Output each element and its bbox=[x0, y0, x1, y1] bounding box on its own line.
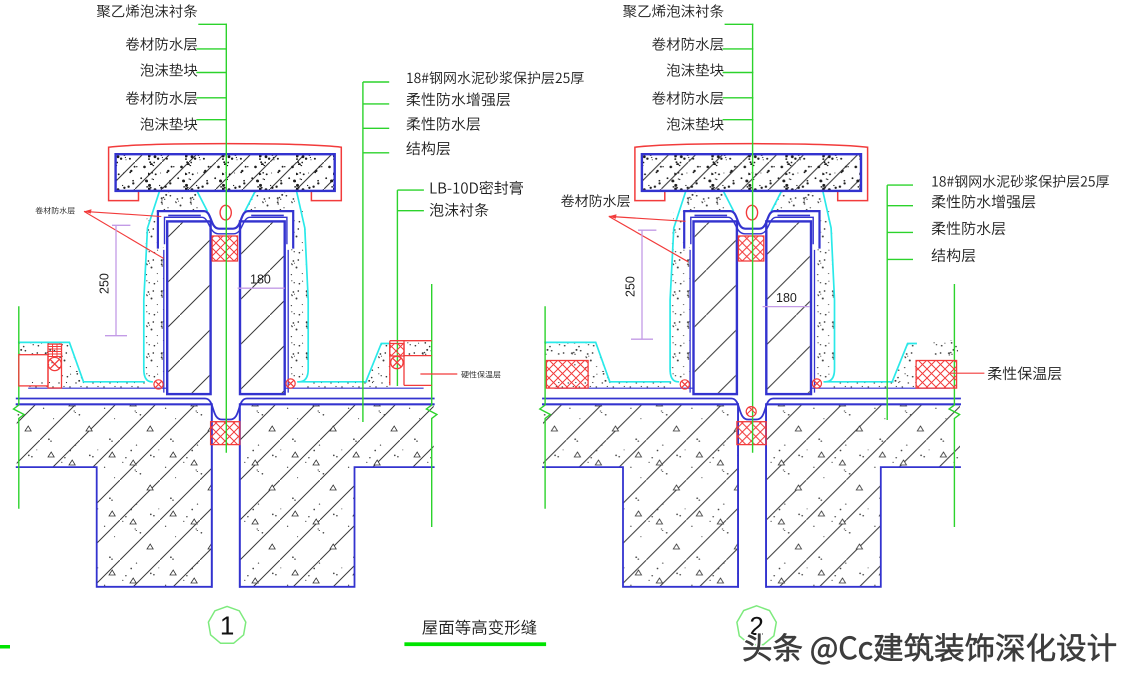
svg-text:250: 250 bbox=[98, 273, 112, 294]
svg-text:180: 180 bbox=[776, 291, 797, 305]
svg-text:250: 250 bbox=[624, 276, 638, 297]
svg-text:1: 1 bbox=[220, 611, 234, 641]
svg-text:180: 180 bbox=[250, 273, 271, 287]
